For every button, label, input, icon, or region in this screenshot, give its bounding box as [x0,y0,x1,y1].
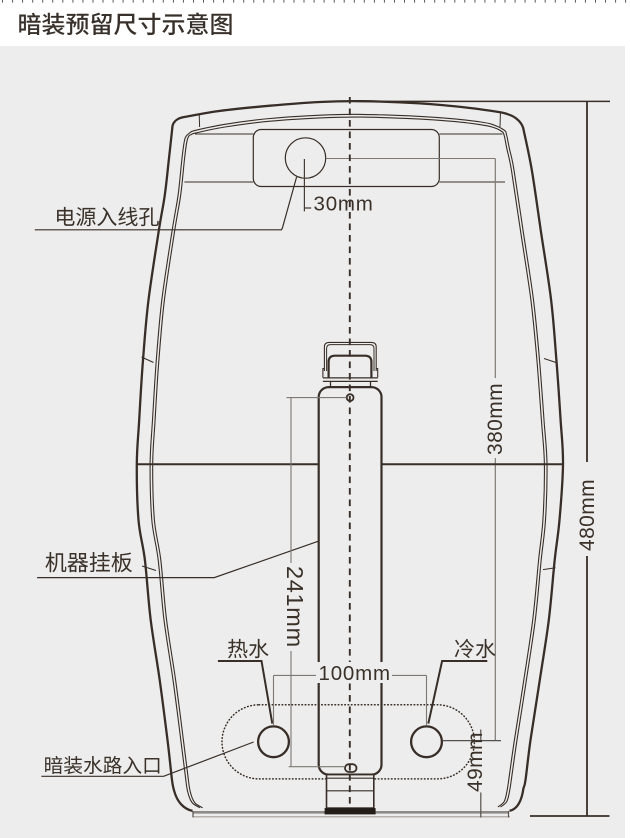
svg-text:100mm: 100mm [319,662,391,685]
svg-text:380mm: 380mm [484,383,507,455]
svg-text:30mm: 30mm [314,193,374,216]
svg-text:49mm: 49mm [464,732,487,792]
svg-text:480mm: 480mm [576,479,599,551]
svg-text:241mm: 241mm [282,566,308,648]
